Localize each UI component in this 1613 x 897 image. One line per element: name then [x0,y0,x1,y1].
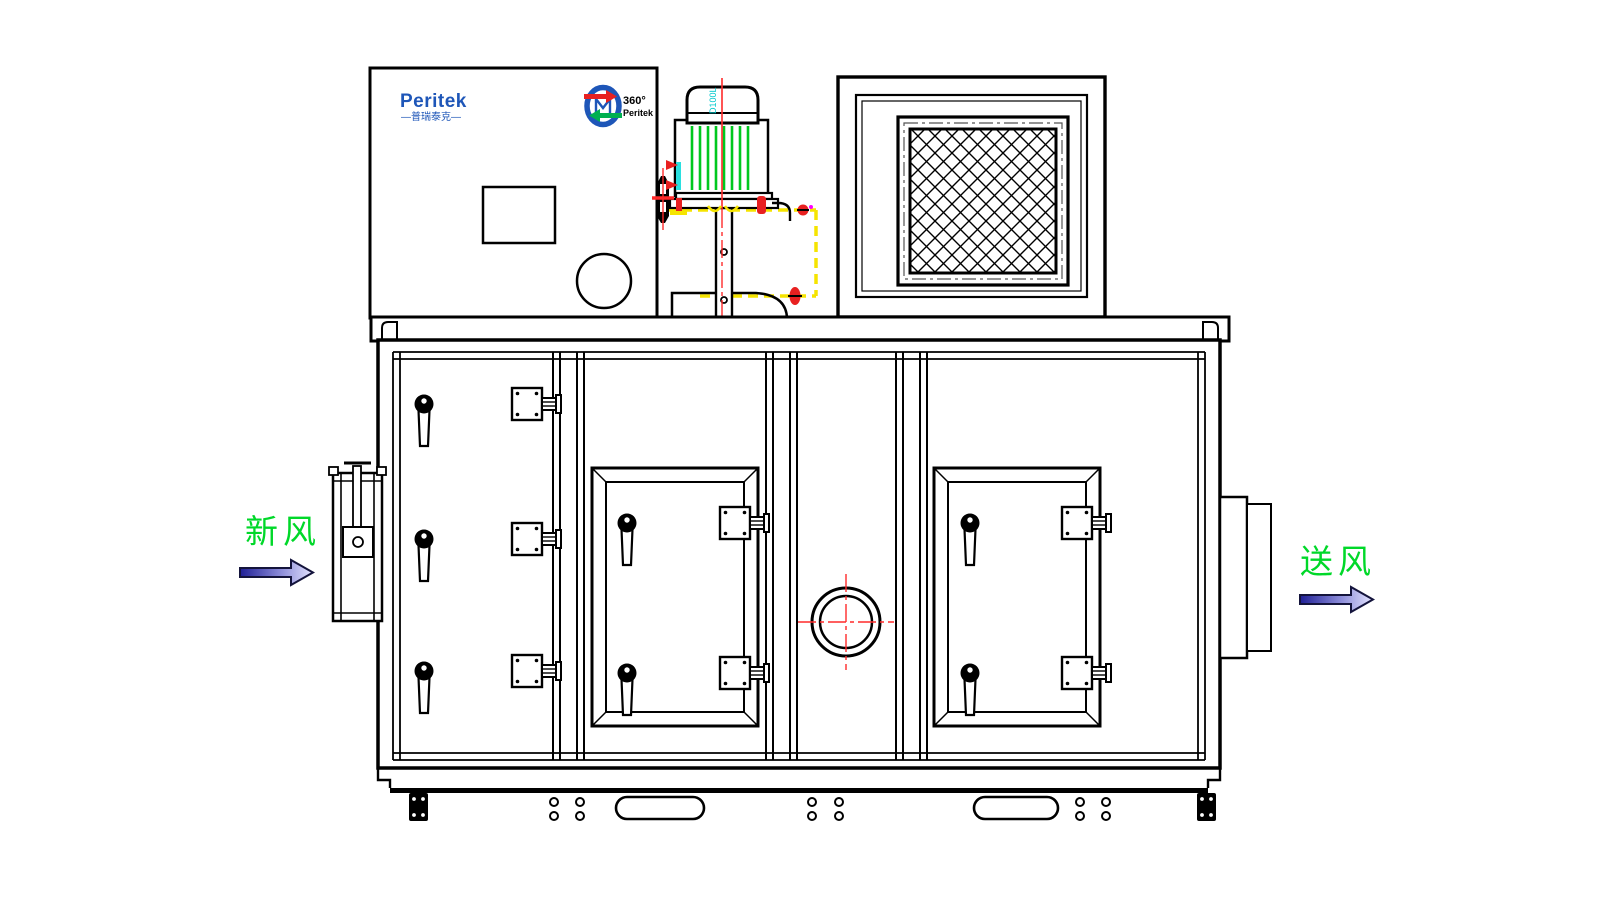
supply-air-outlet [1220,497,1271,658]
fresh-air-label: 新风 [245,513,321,550]
supply-air-annotation: 送风 [1300,543,1376,612]
motor-model-label: D100L [708,87,718,114]
cad-drawing: Peritek —普瑞泰克— 360° Peritek [0,0,1613,897]
rotor-logo-brand: Peritek [623,108,654,118]
cabinet-top-band [371,317,1229,341]
drawing-canvas: Peritek —普瑞泰克— 360° Peritek [0,0,1613,897]
control-box: Peritek —普瑞泰克— 360° Peritek [370,68,657,318]
base-frame [378,768,1220,821]
motor-support-column [716,208,732,318]
damper-rod [353,466,361,527]
supply-air-label: 送风 [1300,543,1376,580]
mesh-screen [910,129,1056,273]
fresh-air-intake [329,463,386,621]
motor-assembly: D100L [652,78,816,326]
forklift-slot [616,797,704,819]
base-rail [390,788,1208,793]
right-access-door[interactable] [934,468,1111,726]
middle-access-door[interactable] [592,468,769,726]
sight-glass-circle [577,254,631,308]
supply-air-arrow-icon [1300,587,1373,612]
forklift-slot [974,797,1058,819]
fresh-air-annotation: 新风 [240,513,321,585]
base-bolt-right [1197,793,1216,821]
red-bolts [757,196,813,305]
base-bolt-left [409,793,428,821]
peritek-logo: Peritek —普瑞泰克— [400,91,467,123]
peritek-logo-text: Peritek [400,91,467,112]
main-cabinet [378,340,1220,768]
peritek-logo-subtext: —普瑞泰克— [401,110,461,123]
hidden-duct-outline [666,210,816,296]
magenta-dot [809,205,813,209]
display-panel [483,187,555,243]
mesh-filter-box [838,77,1105,317]
fresh-air-arrow-icon [240,560,313,585]
rotor-logo-degrees: 360° [623,95,646,107]
